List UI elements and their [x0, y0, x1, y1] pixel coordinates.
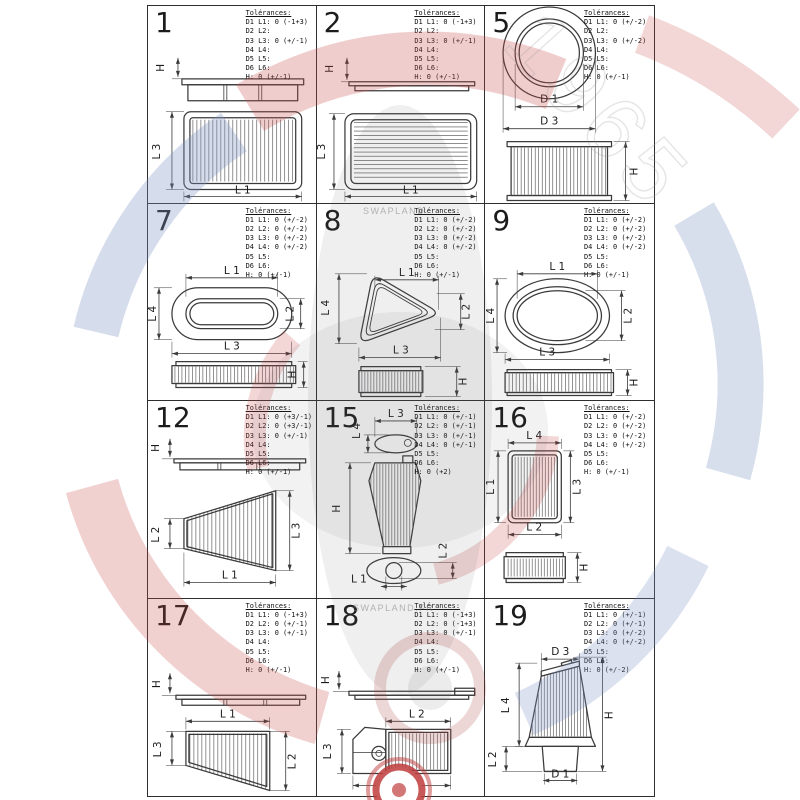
cell-number: 19: [492, 599, 528, 633]
tolerance-line: D1 L1: 0 (-1+3): [246, 611, 314, 620]
tolerance-line: D3 L3: 0 (+/-1): [246, 37, 314, 46]
cell-number: 8: [324, 204, 342, 238]
cell-number: 1: [155, 6, 173, 40]
cone-cap: [402, 456, 412, 463]
cell-16: 16 Tolérances: D1 L1: 0 (+/-2)D2 L2: 0 (…: [485, 401, 654, 599]
svg-text:L 3: L 3: [322, 743, 334, 759]
svg-text:H: H: [331, 505, 343, 513]
cell-number: 12: [155, 401, 191, 435]
tolerance-line: D2 L2:: [246, 27, 314, 36]
tolerance-block: Tolérances: D1 L1: 0 (+/-2)D2 L2: 0 (+/-…: [246, 207, 314, 281]
svg-text:L 2: L 2: [623, 307, 635, 323]
side-view: [349, 688, 475, 699]
tolerance-line: D6 L6:: [246, 262, 314, 271]
tolerance-block: Tolérances: D1 L1: 0 (+/-1)D2 L2: 0 (+/-…: [584, 602, 652, 676]
svg-text:D 1: D 1: [552, 768, 570, 780]
tolerance-line: D5 L5:: [414, 253, 482, 262]
svg-text:H: H: [287, 370, 299, 378]
tolerance-line: H: 0 (+/-1): [584, 468, 652, 477]
tolerance-line: D3 L3: 0 (+/-1): [246, 629, 314, 638]
cell-5: 5 Tolérances: D1 L1: 0 (+/-2)D2 L2:D3 L3…: [485, 6, 654, 204]
tolerance-line: D1 L1: 0 (+/-2): [584, 413, 652, 422]
tolerance-title: Tolérances:: [584, 9, 652, 18]
tolerance-block: Tolérances: D1 L1: 0 (+/-2)D2 L2:D3 L3: …: [584, 9, 652, 83]
tolerance-lines: D1 L1: 0 (-1+3)D2 L2:D3 L3: 0 (+/-1)D4 L…: [414, 18, 482, 82]
top-view: [505, 278, 609, 352]
cell-17: 17 Tolérances: D1 L1: 0 (-1+3)D2 L2: 0 (…: [148, 599, 317, 797]
tolerance-line: H: 0 (+/-1): [414, 666, 482, 675]
tolerance-line: D3 L3: 0 (+/-1): [414, 629, 482, 638]
tolerance-line: D6 L6:: [246, 657, 314, 666]
svg-text:H: H: [629, 168, 641, 176]
pleats: [193, 120, 293, 182]
tolerance-line: D6 L6:: [414, 459, 482, 468]
tolerance-line: D1 L1: 0 (+3/-1): [246, 413, 314, 422]
tolerance-line: D3 L3: 0 (+/-2): [584, 432, 652, 441]
tolerance-line: D6 L6:: [584, 459, 652, 468]
svg-text:L 1: L 1: [397, 772, 413, 784]
svg-text:L 3: L 3: [572, 479, 584, 495]
tolerance-line: D3 L3: 0 (+/-2): [414, 234, 482, 243]
tolerance-block: Tolérances: D1 L1: 0 (+/-2)D2 L2: 0 (+/-…: [414, 207, 482, 281]
tolerance-line: D4 L4:: [414, 46, 482, 55]
svg-text:L 3: L 3: [224, 340, 240, 352]
tolerance-line: D2 L2: 0 (+/-1): [414, 422, 482, 431]
tolerance-line: D5 L5:: [246, 253, 314, 262]
tolerance-title: Tolérances:: [246, 9, 314, 18]
tolerance-line: D2 L2: 0 (+3/-1): [246, 422, 314, 431]
tolerance-line: H: 0 (+/-1): [414, 73, 482, 82]
tolerance-title: Tolérances:: [584, 602, 652, 611]
tolerance-title: Tolérances:: [414, 602, 482, 611]
tolerance-line: D3 L3: 0 (+/-1): [414, 432, 482, 441]
tolerance-line: H: 0 (+/-1): [414, 271, 482, 280]
tolerance-line: D5 L5:: [584, 55, 652, 64]
tolerance-line: D2 L2: 0 (-1+3): [414, 620, 482, 629]
pleats: [509, 373, 611, 391]
tolerance-lines: D1 L1: 0 (+/-1)D2 L2: 0 (+/-1)D3 L3: 0 (…: [414, 413, 482, 477]
tolerance-block: Tolérances: D1 L1: 0 (-1+3)D2 L2: 0 (-1+…: [414, 602, 482, 676]
svg-text:L 3: L 3: [393, 344, 409, 356]
tolerance-lines: D1 L1: 0 (+/-2)D2 L2: 0 (+/-2)D3 L3: 0 (…: [584, 216, 652, 280]
tolerance-line: D4 L4:: [414, 638, 482, 647]
tolerance-line: D1 L1: 0 (+/-2): [584, 18, 652, 27]
tolerance-line: D4 L4:: [246, 441, 314, 450]
tolerance-line: D1 L1: 0 (-1+3): [414, 18, 482, 27]
svg-text:L 1: L 1: [220, 708, 236, 720]
tolerance-line: D4 L4: 0 (+/-1): [414, 441, 482, 450]
tolerance-block: Tolérances: D1 L1: 0 (+/-2)D2 L2: 0 (+/-…: [584, 207, 652, 281]
tolerance-title: Tolérances:: [414, 9, 482, 18]
cell-2: 2 Tolérances: D1 L1: 0 (-1+3)D2 L2:D3 L3…: [317, 6, 486, 204]
svg-text:L 1: L 1: [224, 264, 240, 276]
svg-text:H: H: [324, 65, 336, 73]
svg-text:L 2: L 2: [487, 751, 499, 767]
svg-text:H: H: [151, 680, 163, 688]
svg-text:H: H: [604, 711, 616, 719]
side-view: [359, 366, 423, 396]
svg-text:L 4: L 4: [527, 430, 543, 442]
tolerance-title: Tolérances:: [414, 207, 482, 216]
svg-text:L 4: L 4: [485, 307, 497, 323]
svg-text:L 2: L 2: [460, 303, 472, 319]
tolerance-lines: D1 L1: 0 (+3/-1)D2 L2: 0 (+3/-1)D3 L3: 0…: [246, 413, 314, 477]
tolerance-line: D5 L5:: [414, 450, 482, 459]
tolerance-line: D6 L6:: [414, 657, 482, 666]
tolerance-line: D2 L2: 0 (+/-1): [246, 620, 314, 629]
pleats: [514, 148, 605, 195]
top-view: [503, 7, 595, 99]
tolerance-lines: D1 L1: 0 (+/-2)D2 L2: 0 (+/-2)D3 L3: 0 (…: [414, 216, 482, 280]
cell-number: 9: [492, 204, 510, 238]
tolerance-line: D2 L2: 0 (+/-1): [584, 620, 652, 629]
tolerance-line: D5 L5:: [246, 55, 314, 64]
tolerance-line: D5 L5:: [584, 648, 652, 657]
tolerance-line: H: 0 (+/-2): [584, 666, 652, 675]
tolerance-line: H: 0 (+/-1): [584, 73, 652, 82]
tolerance-lines: D1 L1: 0 (+/-2)D2 L2: 0 (+/-2)D3 L3: 0 (…: [584, 413, 652, 477]
tolerance-line: D4 L4:: [584, 46, 652, 55]
cell-number: 5: [492, 6, 510, 40]
svg-text:D 3: D 3: [540, 116, 558, 128]
cell-8: 8 Tolérances: D1 L1: 0 (+/-2)D2 L2: 0 (+…: [317, 204, 486, 402]
tolerance-line: D5 L5:: [246, 450, 314, 459]
tolerance-title: Tolérances:: [246, 602, 314, 611]
tolerance-line: D3 L3: 0 (+/-2): [584, 629, 652, 638]
svg-text:L 2: L 2: [150, 527, 162, 543]
tolerance-line: D4 L4:: [246, 638, 314, 647]
side-view: [505, 369, 613, 395]
cell-number: 17: [155, 599, 191, 633]
svg-text:H: H: [629, 378, 641, 386]
top-view: [508, 451, 561, 523]
side-view: [349, 82, 475, 91]
tolerance-line: D2 L2:: [584, 27, 652, 36]
tolerance-line: D1 L1: 0 (-1+3): [246, 18, 314, 27]
svg-text:L 2: L 2: [527, 522, 543, 534]
top-view: [361, 277, 435, 340]
tolerance-lines: D1 L1: 0 (-1+3)D2 L2: 0 (-1+3)D3 L3: 0 (…: [414, 611, 482, 675]
dimensions: L 4 L 1 L 3 L 2 H: [485, 430, 590, 583]
tolerance-line: D3 L3: 0 (+/-2): [584, 234, 652, 243]
tolerance-line: D6 L6:: [584, 262, 652, 271]
tolerance-line: H: 0 (+/-1): [246, 666, 314, 675]
tolerance-block: Tolérances: D1 L1: 0 (+3/-1)D2 L2: 0 (+3…: [246, 404, 314, 478]
svg-text:L 4: L 4: [148, 305, 159, 321]
tolerance-line: D2 L2: 0 (+/-2): [584, 422, 652, 431]
tolerance-title: Tolérances:: [584, 404, 652, 413]
side-view: [176, 695, 306, 705]
tolerance-line: D2 L2:: [414, 27, 482, 36]
pleats: [175, 366, 294, 382]
tolerance-line: H: 0 (+/-1): [246, 468, 314, 477]
tolerance-line: H: 0 (+/-1): [246, 271, 314, 280]
cell-1: 1 Tolérances: D1 L1: 0 (-1+3)D2 L2:D3 L3…: [148, 6, 317, 204]
tolerance-lines: D1 L1: 0 (+/-2)D2 L2: 0 (+/-2)D3 L3: 0 (…: [246, 216, 314, 280]
tolerance-title: Tolérances:: [584, 207, 652, 216]
tolerance-lines: D1 L1: 0 (+/-1)D2 L2: 0 (+/-1)D3 L3: 0 (…: [584, 611, 652, 675]
top-view: [345, 114, 477, 190]
tolerance-line: D3 L3: 0 (+/-2): [246, 234, 314, 243]
tolerance-line: D5 L5:: [584, 450, 652, 459]
tolerance-line: D6 L6:: [246, 64, 314, 73]
filter-grid: 1 Tolérances: D1 L1: 0 (-1+3)D2 L2:D3 L3…: [147, 5, 655, 797]
top-view: [184, 112, 302, 190]
tolerance-lines: D1 L1: 0 (+/-2)D2 L2:D3 L3: 0 (+/-2)D4 L…: [584, 18, 652, 82]
tolerance-line: D4 L4:: [246, 46, 314, 55]
tolerance-line: D2 L2: 0 (+/-2): [246, 225, 314, 234]
tolerance-block: Tolérances: D1 L1: 0 (+/-2)D2 L2: 0 (+/-…: [584, 404, 652, 478]
svg-text:L 1: L 1: [351, 574, 367, 586]
tolerance-line: D1 L1: 0 (+/-1): [584, 611, 652, 620]
tolerance-line: H: 0 (+2): [414, 468, 482, 477]
tolerance-line: H: 0 (+/-1): [246, 73, 314, 82]
svg-text:L 4: L 4: [320, 299, 332, 315]
tolerance-line: H: 0 (+/-1): [584, 271, 652, 280]
cell-number: 16: [492, 401, 528, 435]
tolerance-line: D6 L6:: [584, 657, 652, 666]
svg-text:H: H: [320, 676, 332, 684]
tolerance-line: D4 L4: 0 (+/-2): [584, 243, 652, 252]
top-view: [172, 287, 292, 339]
filter-reference-sheet: 1 Tolérances: D1 L1: 0 (-1+3)D2 L2:D3 L3…: [0, 0, 800, 800]
tolerance-line: D4 L4: 0 (+/-2): [246, 243, 314, 252]
svg-text:H: H: [155, 64, 167, 72]
svg-text:L 3: L 3: [291, 523, 303, 539]
pleats: [354, 123, 468, 177]
tolerance-line: D3 L3: 0 (+/-1): [414, 37, 482, 46]
tolerance-lines: D1 L1: 0 (-1+3)D2 L2: 0 (+/-1)D3 L3: 0 (…: [246, 611, 314, 675]
svg-text:L 1: L 1: [235, 185, 251, 197]
tolerance-line: D1 L1: 0 (+/-2): [414, 216, 482, 225]
cell-15: 15 Tolérances: D1 L1: 0 (+/-1)D2 L2: 0 (…: [317, 401, 486, 599]
tolerance-lines: D1 L1: 0 (-1+3)D2 L2:D3 L3: 0 (+/-1)D4 L…: [246, 18, 314, 82]
top-view: [353, 727, 451, 773]
flange-top-view: [375, 435, 417, 453]
svg-text:H: H: [457, 377, 469, 385]
svg-text:L 3: L 3: [151, 144, 163, 160]
pleats: [362, 371, 422, 391]
tolerance-line: D5 L5:: [414, 55, 482, 64]
pleats-side: [508, 559, 562, 577]
base-view: [367, 558, 421, 584]
tolerance-line: D1 L1: 0 (-1+3): [414, 611, 482, 620]
svg-text:L 2: L 2: [437, 543, 449, 559]
tolerance-line: D4 L4: 0 (+/-2): [584, 441, 652, 450]
svg-text:L 1: L 1: [399, 266, 415, 278]
cell-12: 12 Tolérances: D1 L1: 0 (+3/-1)D2 L2: 0 …: [148, 401, 317, 599]
tolerance-line: D1 L1: 0 (+/-2): [584, 216, 652, 225]
dimensions: L 1 L 4 L 2 L 3 H: [320, 266, 473, 396]
tolerance-title: Tolérances:: [246, 404, 314, 413]
tolerance-block: Tolérances: D1 L1: 0 (-1+3)D2 L2:D3 L3: …: [414, 9, 482, 83]
svg-text:H: H: [579, 564, 591, 572]
cell-number: 2: [324, 6, 342, 40]
svg-text:L 1: L 1: [550, 260, 566, 272]
svg-text:L 2: L 2: [285, 305, 297, 321]
tolerance-block: Tolérances: D1 L1: 0 (+/-1)D2 L2: 0 (+/-…: [414, 404, 482, 478]
tolerance-line: D1 L1: 0 (+/-1): [414, 413, 482, 422]
tolerance-line: D6 L6:: [414, 64, 482, 73]
svg-text:D 3: D 3: [552, 646, 570, 658]
svg-text:L 1: L 1: [403, 185, 419, 197]
svg-text:L 2: L 2: [287, 753, 299, 769]
tolerance-line: D3 L3: 0 (+/-1): [246, 432, 314, 441]
tolerance-block: Tolérances: D1 L1: 0 (-1+3)D2 L2:D3 L3: …: [246, 9, 314, 83]
tolerance-line: D4 L4: 0 (+/-2): [414, 243, 482, 252]
tolerance-line: D2 L2: 0 (+/-2): [414, 225, 482, 234]
tolerance-line: D5 L5:: [246, 648, 314, 657]
tolerance-line: D4 L4: 0 (+/-2): [584, 638, 652, 647]
cell-18: 18 Tolérances: D1 L1: 0 (-1+3)D2 L2: 0 (…: [317, 599, 486, 797]
svg-text:L 3: L 3: [388, 408, 404, 420]
tolerance-line: D5 L5:: [584, 253, 652, 262]
svg-text:D 1: D 1: [540, 94, 558, 106]
tolerance-block: Tolérances: D1 L1: 0 (-1+3)D2 L2: 0 (+/-…: [246, 602, 314, 676]
cell-7: 7 Tolérances: D1 L1: 0 (+/-2)D2 L2: 0 (+…: [148, 204, 317, 402]
cell-number: 15: [324, 401, 360, 435]
svg-text:L 2: L 2: [409, 708, 425, 720]
pleats: [392, 733, 448, 769]
svg-text:L 1: L 1: [485, 479, 497, 495]
pleats: [515, 457, 554, 517]
tolerance-line: D6 L6:: [246, 459, 314, 468]
cell-9: 9 Tolérances: D1 L1: 0 (+/-2)D2 L2: 0 (+…: [485, 204, 654, 402]
tolerance-line: D6 L6:: [414, 262, 482, 271]
svg-text:L 1: L 1: [222, 570, 238, 582]
side-view: [172, 361, 296, 387]
cell-19: 19 Tolérances: D1 L1: 0 (+/-1)D2 L2: 0 (…: [485, 599, 654, 797]
tolerance-line: D5 L5:: [414, 648, 482, 657]
tolerance-line: D6 L6:: [584, 64, 652, 73]
tolerance-line: D1 L1: 0 (+/-2): [246, 216, 314, 225]
svg-text:L 4: L 4: [500, 697, 512, 713]
tolerance-line: D2 L2: 0 (+/-2): [584, 225, 652, 234]
tolerance-title: Tolérances:: [246, 207, 314, 216]
svg-text:L 3: L 3: [317, 144, 328, 160]
tolerance-line: D3 L3: 0 (+/-2): [584, 37, 652, 46]
svg-text:L 3: L 3: [152, 741, 164, 757]
svg-text:L 3: L 3: [540, 346, 556, 358]
cell-number: 18: [324, 599, 360, 633]
side-view: [507, 142, 611, 201]
cell-number: 7: [155, 204, 173, 238]
svg-text:H: H: [150, 444, 162, 452]
tolerance-title: Tolérances:: [414, 404, 482, 413]
